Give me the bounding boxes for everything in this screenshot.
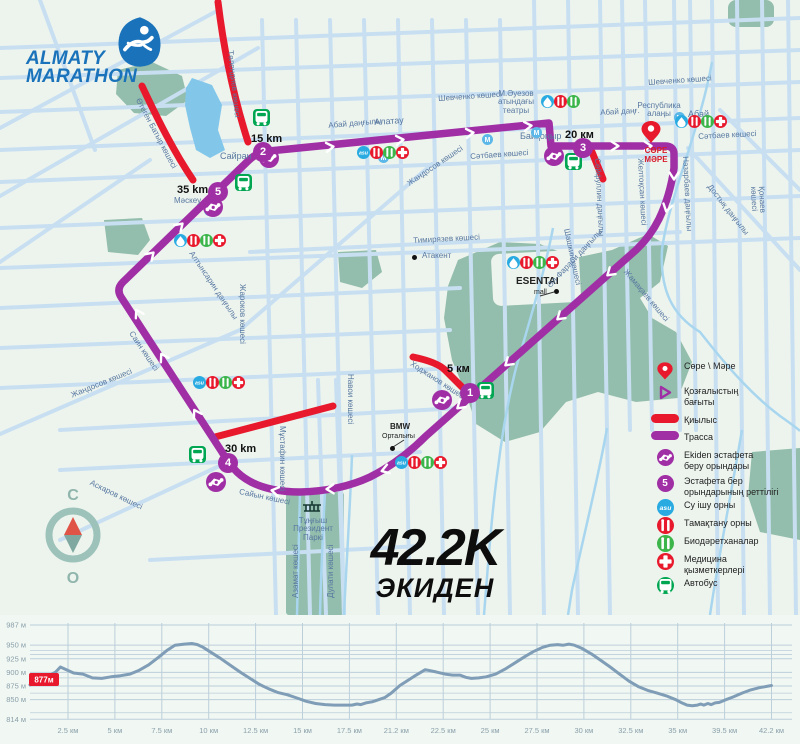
- y-axis-label: 850 м: [6, 695, 26, 704]
- x-axis-label: 12.5 км: [243, 726, 268, 735]
- poi-dot: [390, 446, 395, 451]
- distance-label: 5 км: [447, 363, 470, 375]
- metro-icon: М: [482, 134, 493, 145]
- legend-icon-cell: [648, 449, 682, 466]
- street-label: Тұңғыш Президент Паркі: [288, 517, 338, 542]
- bio-icon: [533, 256, 546, 269]
- legend-label: Сөре \ Мәре: [684, 361, 736, 372]
- x-axis-label: 30 км: [574, 726, 593, 735]
- water-icon: [675, 115, 688, 128]
- x-axis-label: 22.5 км: [431, 726, 456, 735]
- svg-text:asu: asu: [359, 150, 369, 156]
- almaty-marathon-logo: ALMATY MARATHON: [18, 14, 218, 99]
- medical-icon: [396, 146, 409, 159]
- legend-icon-cell: [648, 577, 682, 594]
- legend-icon-cell: [648, 431, 682, 440]
- medical-icon: [213, 234, 226, 247]
- food-icon: [408, 456, 421, 469]
- compass-rose-icon: [44, 506, 102, 564]
- svg-text:М: М: [484, 136, 490, 143]
- y-axis-label: 925 м: [6, 654, 26, 663]
- bio-icon: [701, 115, 714, 128]
- y-axis-label: 875 м: [6, 682, 26, 691]
- x-axis-label: 2.5 км: [58, 726, 79, 735]
- legend-icon-cell: 5: [648, 475, 682, 492]
- bio-icon: [567, 95, 580, 108]
- legend-label: Автобус: [684, 578, 717, 589]
- svg-text:asu: asu: [659, 505, 672, 512]
- poi-dot: [412, 255, 417, 260]
- bio-icon: [421, 456, 434, 469]
- relay-point-marker-5: 5: [208, 182, 228, 202]
- bus-icon: [189, 446, 206, 463]
- asu-icon: asu: [395, 456, 408, 469]
- relay-point-marker-3: 3: [573, 138, 593, 158]
- sequence-number-icon: 5: [657, 475, 674, 492]
- bio-icon: [657, 535, 674, 552]
- street-label: Дулати көшесі: [327, 545, 335, 598]
- distance-label: 35 km: [177, 184, 208, 196]
- y-axis-label: 950 м: [6, 641, 26, 650]
- medical-icon: [714, 115, 727, 128]
- street-label: Атакент: [422, 252, 451, 260]
- bus-icon: [657, 577, 674, 594]
- svg-text:М: М: [533, 129, 539, 136]
- asu-icon: asu: [193, 376, 206, 389]
- street-label: Навои көшесі: [346, 374, 354, 424]
- handshake-icon: [206, 472, 226, 492]
- route-map: ALMATY MARATHON СӨРЕ МӘРЕ 42.2K ЭКИДЕН С…: [0, 0, 800, 615]
- street-label: mall: [534, 289, 547, 296]
- distance-label: 15 km: [251, 133, 282, 145]
- x-axis-label: 10 км: [199, 726, 218, 735]
- medical-icon: [232, 376, 245, 389]
- compass-south-label: О: [38, 571, 108, 587]
- legend-icon-cell: [648, 535, 682, 552]
- water-icon: [541, 95, 554, 108]
- food-icon: [370, 146, 383, 159]
- legend-icon-cell: asu: [648, 499, 682, 516]
- water-icon: [174, 234, 187, 247]
- asu-icon: asu: [657, 499, 674, 516]
- x-axis-label: 39.5 км: [712, 726, 737, 735]
- svg-text:asu: asu: [397, 460, 407, 466]
- medical-icon: [657, 553, 674, 570]
- direction-arrow-icon: [658, 385, 673, 400]
- legend-icon-cell: [648, 414, 682, 423]
- legend-label: Медицина қызметкерлері: [684, 554, 745, 576]
- asu-icon: asu: [357, 146, 370, 159]
- elevation-chart-canvas: 987 м950 м925 м900 м875 м850 м814 м2.5 к…: [0, 615, 800, 744]
- relay-point-marker-4: 4: [218, 453, 238, 473]
- street-label: Орталығы: [382, 433, 415, 440]
- distance-label: 30 km: [225, 443, 256, 455]
- crossing-bar-icon: [651, 414, 679, 423]
- elevation-chart: 987 м950 м925 м900 м875 м850 м814 м2.5 к…: [0, 615, 800, 744]
- race-type: ЭКИДЕН: [330, 574, 540, 602]
- handshake-icon: [432, 390, 452, 410]
- legend-label: Биодәретханалар: [684, 536, 758, 547]
- legend-icon-cell: [648, 553, 682, 570]
- x-axis-label: 32.5 км: [618, 726, 643, 735]
- race-title: 42.2K ЭКИДЕН: [330, 522, 540, 602]
- food-icon: [206, 376, 219, 389]
- y-axis-label: 900 м: [6, 668, 26, 677]
- bus-icon: [253, 109, 270, 126]
- bio-icon: [219, 376, 232, 389]
- medical-icon: [434, 456, 447, 469]
- legend-icon-cell: [648, 385, 682, 400]
- bio-icon: [200, 234, 213, 247]
- bio-icon: [383, 146, 396, 159]
- compass: С О: [38, 488, 108, 588]
- legend-label: Трасса: [684, 432, 713, 443]
- x-axis-label: 35 км: [668, 726, 687, 735]
- x-axis-label: 17.5 км: [337, 726, 362, 735]
- food-icon: [657, 517, 674, 534]
- food-icon: [688, 115, 701, 128]
- food-icon: [520, 256, 533, 269]
- elevation-line: [30, 644, 772, 706]
- street-label: BMW: [390, 423, 410, 431]
- street-label: М.Әуезов атындағы театры: [486, 90, 546, 115]
- water-icon: [507, 256, 520, 269]
- street-label: Сайран: [220, 152, 252, 161]
- poi-dot: [554, 289, 559, 294]
- x-axis-label: 7.5 км: [151, 726, 172, 735]
- street-label: Мәскеу: [174, 197, 201, 205]
- legend-label: Қозғалыстың бағыты: [684, 386, 738, 408]
- logo-line2: MARATHON: [26, 68, 137, 86]
- street-label: Қонаев көшесі: [748, 186, 767, 222]
- distance-label: 20 км: [565, 129, 594, 141]
- x-axis-label: 42.2 км: [759, 726, 784, 735]
- food-icon: [187, 234, 200, 247]
- x-axis-label: 5 км: [108, 726, 123, 735]
- legend-icon-cell: [648, 517, 682, 534]
- course-bar-icon: [651, 431, 679, 440]
- food-icon: [554, 95, 567, 108]
- handshake-icon: [544, 146, 564, 166]
- street-label: Азамат көшесі: [292, 544, 300, 598]
- handshake-icon: [657, 449, 674, 466]
- svg-text:asu: asu: [195, 380, 205, 386]
- legend-label: Тамақтану орны: [684, 518, 752, 529]
- x-axis-label: 21.2 км: [384, 726, 409, 735]
- x-axis-label: 15 км: [293, 726, 312, 735]
- race-distance: 42.2K: [330, 522, 540, 574]
- medical-icon: [546, 256, 559, 269]
- legend-icon-cell: [648, 360, 682, 381]
- street-label: Мұстафин көшесі: [278, 426, 286, 491]
- bus-icon: [235, 174, 252, 191]
- legend-label: Ekiden эстафета беру орындары: [684, 450, 753, 472]
- finish-pin-icon: [638, 117, 664, 145]
- legend-label: Эстафета бер орындарының реттілігі: [684, 476, 779, 498]
- relay-point-marker-1: 1: [460, 383, 480, 403]
- legend-label: Су ішу орны: [684, 500, 735, 511]
- start-elevation-value: 877м: [34, 676, 53, 685]
- metro-icon: М: [531, 127, 542, 138]
- x-axis-label: 25 км: [481, 726, 500, 735]
- y-axis-label: 987 м: [6, 621, 26, 630]
- almaty-marathon-route-poster: ALMATY MARATHON СӨРЕ МӘРЕ 42.2K ЭКИДЕН С…: [0, 0, 800, 744]
- x-axis-label: 27.5 км: [524, 726, 549, 735]
- legend-label: Қиылыс: [684, 415, 717, 426]
- y-axis-label: 814 м: [6, 715, 26, 724]
- finish-pin-icon: [656, 360, 674, 381]
- relay-point-marker-2: 2: [253, 142, 273, 162]
- street-label: Жароков көшесі: [238, 284, 246, 344]
